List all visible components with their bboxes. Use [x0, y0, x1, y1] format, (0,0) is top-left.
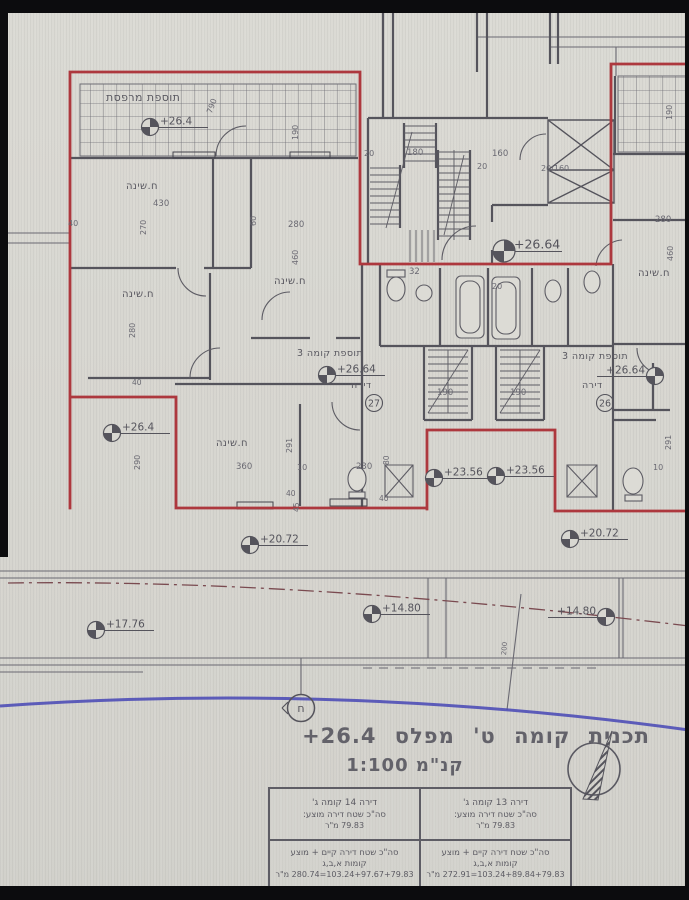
level-marker: +20.72 — [562, 528, 629, 548]
toilet-icon — [348, 467, 366, 498]
area-desc: סה"כ שטח דירה מוצע: — [303, 810, 386, 820]
level-value: +26.4 — [122, 422, 154, 434]
photo-border-bottom — [0, 886, 689, 900]
level-marker-icon — [598, 617, 607, 626]
area-value: 79.83 מ"ר — [476, 821, 515, 831]
window-thresholds — [173, 152, 367, 509]
area-desc: קומות א,ב,ג — [473, 859, 517, 869]
drawing-title: תכנית קומה ט' מפלס +26.4 — [250, 724, 650, 748]
level-value: +26.64 — [606, 365, 645, 377]
bathtub-icon — [492, 277, 520, 339]
shaft-icon — [385, 465, 413, 497]
drawing-title-text: תכנית קומה ט' מפלס — [395, 724, 650, 748]
level-marker-icon — [496, 468, 505, 477]
level-marker-icon — [250, 537, 259, 546]
level-marker-icon — [570, 531, 579, 540]
toilet-icon — [387, 270, 405, 301]
level-value: +14.80 — [382, 603, 421, 615]
level-marker-icon — [562, 539, 571, 548]
level-marker-icon — [364, 614, 373, 623]
level-value: +17.76 — [106, 619, 145, 631]
apartment-number: 26 — [597, 395, 614, 412]
sink-icon — [545, 280, 561, 302]
level-marker-icon — [647, 376, 656, 385]
photo-border-top — [0, 0, 689, 13]
bathtub-icon — [456, 276, 484, 338]
level-value: +20.72 — [260, 534, 299, 546]
level-marker-icon — [88, 630, 97, 639]
level-marker: +23.56 — [426, 467, 493, 487]
level-marker-icon — [112, 425, 121, 434]
level-marker: +23.56 — [488, 465, 555, 485]
area-desc: קומות א,ב,ג — [322, 859, 366, 869]
sink-icon — [416, 285, 432, 301]
level-marker-icon — [655, 368, 664, 377]
apartment-number-value: 26 — [599, 399, 611, 410]
area-value: 79.83 מ"ר — [325, 821, 364, 831]
level-marker-icon — [96, 622, 105, 631]
area-sum: 103.24+89.84+79.83=272.91 מ"ר — [426, 870, 564, 880]
level-marker-icon — [242, 545, 251, 554]
area-desc: סה"כ שטח דירה מוצע: — [454, 810, 537, 820]
level-marker: +17.76 — [88, 619, 155, 639]
level-marker-icon — [372, 606, 381, 615]
level-marker: +26.64 — [597, 365, 664, 385]
level-marker-icon — [488, 476, 497, 485]
toilet-icon — [584, 271, 600, 293]
level-marker: +14.80 — [548, 606, 615, 626]
level-marker-icon — [327, 367, 336, 376]
level-value: +26.64 — [514, 237, 560, 252]
photo-border-left — [0, 0, 8, 557]
area-sum: 103.24+97.67+79.83=280.74 מ"ר — [275, 870, 413, 880]
level-marker-icon — [434, 470, 443, 479]
level-value: +26.64 — [337, 364, 376, 376]
toilet-icon — [623, 468, 643, 501]
photo-border-right — [685, 0, 689, 900]
level-marker-icon — [493, 251, 504, 262]
area-desc: סה"כ שטח דירה קיים + מוצע — [291, 848, 399, 858]
apartment-number-value: 27 — [368, 399, 380, 410]
area-table-cell-bottom-left: סה"כ שטח דירה קיים + מוצע קומות א,ב,ג 10… — [269, 840, 420, 887]
level-marker: +26.64 — [319, 364, 386, 384]
level-value: +23.56 — [444, 467, 483, 479]
level-marker: +26.64 — [493, 237, 562, 263]
annotation-markers-layer: +26.4+26.4+26.64+26.64+26.64+23.56+23.56… — [88, 116, 664, 722]
area-table-cell-top-left: דירה 14 קומה ג' סה"כ שטח דירה מוצע: 79.8… — [269, 788, 420, 840]
level-marker: +26.4 — [104, 422, 171, 442]
level-value: +23.56 — [506, 465, 545, 477]
level-marker: +20.72 — [242, 534, 309, 554]
apartment-title: דירה 14 קומה ג' — [312, 798, 377, 809]
apartment-number: 27 — [366, 395, 383, 412]
area-table-cell-bottom-right: סה"כ שטח דירה קיים + מוצע קומות א,ב,ג 10… — [420, 840, 571, 887]
level-marker-icon — [104, 433, 113, 442]
elevator-shaft-icon — [548, 120, 614, 203]
section-mark-letter: ח — [297, 702, 304, 715]
drawing-title-level: +26.4 — [302, 724, 376, 748]
area-table-cell-top-right: דירה 13 קומה ג' סה"כ שטח דירה מוצע: 79.8… — [420, 788, 571, 840]
level-marker: +14.80 — [364, 603, 431, 623]
apartment-title: דירה 13 קומה ג' — [463, 798, 528, 809]
area-table: דירה 13 קומה ג' סה"כ שטח דירה מוצע: 79.8… — [268, 787, 572, 889]
area-desc: סה"כ שטח דירה קיים + מוצע — [442, 848, 550, 858]
level-marker-icon — [319, 375, 328, 384]
shaft-icon — [567, 465, 597, 497]
level-marker-icon — [606, 609, 615, 618]
drawing-scale: קנ"מ 1:100 — [330, 755, 480, 776]
level-value: +20.72 — [580, 528, 619, 540]
level-value: +26.4 — [160, 116, 192, 128]
level-value: +14.80 — [557, 606, 596, 618]
